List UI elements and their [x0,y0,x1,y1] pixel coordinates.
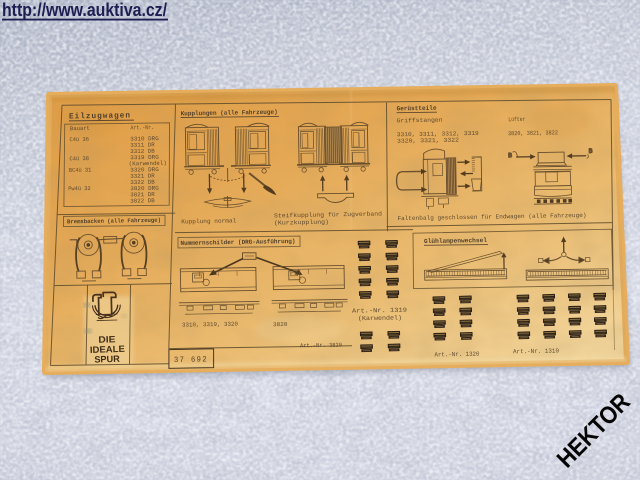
svg-text:Art.-Nr. 1310: Art.-Nr. 1310 [513,347,559,355]
svg-text:DIE: DIE [98,334,115,345]
svg-text:Gerüstteile: Gerüstteile [397,105,437,113]
svg-text:B: B [588,148,592,155]
svg-text:http://www.auktiva.cz/: http://www.auktiva.cz/ [2,0,167,20]
svg-text:Glühlampenwechsel: Glühlampenwechsel [424,237,487,245]
svg-text:3822 DB: 3822 DB [130,197,155,204]
svg-text:SPUR: SPUR [94,354,120,365]
svg-text:3310, 3319, 3320: 3310, 3319, 3320 [182,321,239,329]
svg-text:(Karwendel): (Karwendel) [358,314,402,322]
svg-text:C4ü 36: C4ü 36 [69,136,89,143]
svg-text:Bauart: Bauart [70,125,90,132]
svg-text:Art.-Nr. 3820: Art.-Nr. 3820 [300,342,342,350]
svg-text:Art.-Nr. 1320: Art.-Nr. 1320 [434,351,479,359]
svg-text:(Kurzkupplung): (Kurzkupplung) [274,219,329,227]
svg-text:3820: 3820 [273,321,288,328]
svg-text:C4ü 38: C4ü 38 [69,155,89,162]
svg-text:Art.-Nr. 1319: Art.-Nr. 1319 [352,307,407,315]
svg-text:3820, 3821, 3822: 3820, 3821, 3822 [508,129,558,137]
svg-text:Pw4ü 32: Pw4ü 32 [68,185,91,192]
svg-text:3320, 3321, 3322: 3320, 3321, 3322 [397,137,460,145]
svg-text:Kupplung normal: Kupplung normal [181,217,237,225]
svg-text:Art.-Nr.: Art.-Nr. [130,124,154,131]
svg-text:Lüfter: Lüfter [508,116,525,123]
svg-text:BC4ü 31: BC4ü 31 [69,166,92,173]
svg-text:37 692: 37 692 [174,355,208,365]
svg-text:Griffstangen: Griffstangen [397,117,444,125]
svg-text:B: B [508,152,512,159]
